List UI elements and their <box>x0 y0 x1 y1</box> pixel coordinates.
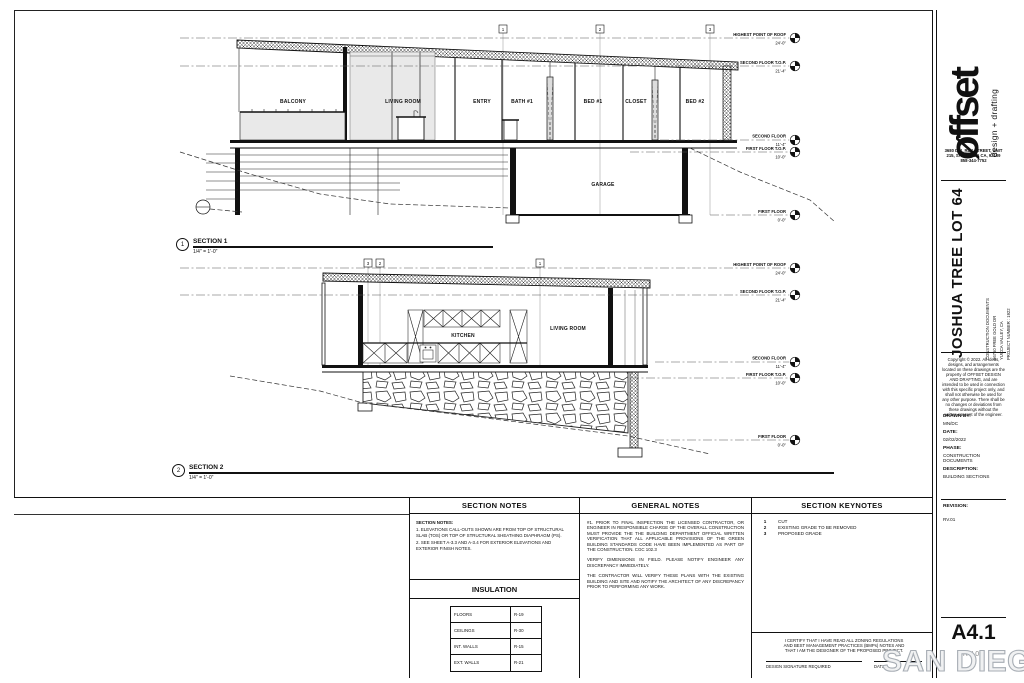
room-label-kitchen: KITCHEN <box>451 333 475 339</box>
blank-panel <box>14 498 410 678</box>
balcony-section1 <box>240 109 345 140</box>
room-label-bed1: BED #1 <box>584 99 603 105</box>
general-notes-panel: GENERAL NOTES #1. PRIOR TO FINAL INSPECT… <box>580 498 752 678</box>
table-row: CEILINGS R-30 <box>451 623 541 639</box>
notes-band: SECTION NOTES SECTION NOTES: 1. ELEVATIO… <box>14 497 932 678</box>
section1-number-bubble: 1 <box>176 238 189 251</box>
title-block-fields: DRAWN BY: MN/DC DATE: 02/02/2022 PHASE: … <box>943 410 1006 479</box>
foundation-section2 <box>230 372 710 457</box>
svg-text:FIRST FLOOR: FIRST FLOOR <box>758 209 786 214</box>
signature-line[interactable] <box>766 661 862 662</box>
section-note-item: 1. ELEVATIONS CALL-OUTS SHOWN ARE FROM T… <box>416 527 573 538</box>
svg-text:0'-0": 0'-0" <box>778 443 787 448</box>
svg-text:FIRST FLOOR T.O.P.: FIRST FLOOR T.O.P. <box>746 146 786 151</box>
field-value: BUILDING SECTIONS <box>943 474 1006 479</box>
svg-text:10'-0": 10'-0" <box>775 155 786 160</box>
room-label-closet: CLOSET <box>625 99 646 105</box>
insulation-header: INSULATION <box>410 579 579 599</box>
mls-watermark: SAN DIEGOMLS <box>882 645 1024 679</box>
section2-title: SECTION 2 <box>189 464 834 474</box>
field-label: PHASE: <box>943 446 1006 451</box>
room-label-bed2: BED #2 <box>686 99 705 105</box>
svg-text:FIRST FLOOR T.O.P.: FIRST FLOOR T.O.P. <box>746 372 786 377</box>
room-label-living-room: LIVING ROOM <box>550 326 586 332</box>
elevation-marker: FIRST FLOOR 0'-0" <box>710 209 800 223</box>
divider <box>941 180 1006 181</box>
svg-text:21'-4": 21'-4" <box>775 69 786 74</box>
room-label-living-room: LIVING ROOM <box>385 99 421 105</box>
table-row: EXT. WALLS R-21 <box>451 655 541 671</box>
svg-text:10'-0": 10'-0" <box>775 381 786 386</box>
general-notes-header: GENERAL NOTES <box>580 498 751 514</box>
svg-text:SECOND FLOOR T.O.P.: SECOND FLOOR T.O.P. <box>740 60 786 65</box>
insulation-table: FLOORS R-19 CEILINGS R-30 INT. WALLS R-1… <box>450 606 542 672</box>
floor-slab-section2 <box>322 365 648 372</box>
field-value: MN/DC <box>943 421 1006 426</box>
svg-text:21'-4": 21'-4" <box>775 298 786 303</box>
field-label: DESCRIPTION: <box>943 467 1006 472</box>
room-label-bath1: BATH #1 <box>511 99 533 105</box>
room-label-garage: GARAGE <box>591 182 615 188</box>
room-label-entry: ENTRY <box>473 99 491 105</box>
elevation-marker: FIRST FLOOR 0'-0" <box>655 434 800 448</box>
section-notes-title: SECTION NOTES: <box>416 520 573 525</box>
field-label: DATE: <box>943 430 1006 435</box>
title-block-inner: øffset design + drafting 3680 DEL REY ST… <box>936 10 1010 678</box>
copyright-text: Copyright © 2022. All ideas, designs, an… <box>937 357 1010 417</box>
table-row: FLOORS R-19 <box>451 607 541 623</box>
section1-caption: 1 SECTION 1 1/4" = 1'-0" <box>176 238 493 255</box>
section-notes-body: SECTION NOTES: 1. ELEVATIONS CALL-OUTS S… <box>410 514 579 551</box>
svg-text:0'-0": 0'-0" <box>778 218 787 223</box>
elevation-marker: SECOND FLOOR T.O.P. 21'-4" <box>180 289 800 303</box>
divider <box>752 632 932 633</box>
section-keynotes-header: SECTION KEYNOTES <box>752 498 932 514</box>
svg-text:SECOND FLOOR: SECOND FLOOR <box>752 134 786 139</box>
divider <box>941 352 1006 353</box>
watermark-text-left: SAN DIEGO <box>882 645 1024 678</box>
svg-text:SECOND FLOOR: SECOND FLOOR <box>752 356 786 361</box>
section1-title: SECTION 1 <box>193 238 493 248</box>
elevation-marker: HIGHEST POINT OF ROOF 24'-0" <box>180 262 800 276</box>
svg-text:FIRST FLOOR: FIRST FLOOR <box>758 434 786 439</box>
section2-scale: 1/4" = 1'-0" <box>189 475 834 481</box>
firm-address: 3680 DEL REY STREET, UNIT 215, SAN DIEGO… <box>937 148 1010 164</box>
room-label-balcony: BALCONY <box>280 99 307 105</box>
elevation-marker: FIRST FLOOR T.O.P. 10'-0" <box>630 372 800 385</box>
floor-slab-section1 <box>230 140 737 148</box>
section-notes-panel: SECTION NOTES SECTION NOTES: 1. ELEVATIO… <box>410 498 580 678</box>
field-label: DRAWN BY: <box>943 414 1006 419</box>
section1-scale: 1/4" = 1'-0" <box>193 249 493 255</box>
revision-label: REVISION: <box>943 504 968 509</box>
revision-value: RV.01 <box>943 517 955 522</box>
elevation-marker: SECOND FLOOR 11'-4" <box>655 356 800 370</box>
svg-text:HIGHEST POINT OF ROOF: HIGHEST POINT OF ROOF <box>733 32 786 37</box>
divider <box>14 514 409 515</box>
keynote-item: 3 PROPOSED GRADE <box>752 531 932 537</box>
table-row: INT. WALLS R-15 <box>451 639 541 655</box>
svg-text:HIGHEST POINT OF ROOF: HIGHEST POINT OF ROOF <box>733 262 786 267</box>
kitchen-casework <box>363 310 527 363</box>
general-notes-body: #1. PRIOR TO FINAL INSPECTION THE LICENS… <box>580 514 751 589</box>
sheet-number: A4.1 <box>937 621 1010 645</box>
drawing-sheet: 1 2 3 <box>0 0 1024 683</box>
keynotes-list: 1 CUT 2 EXISTING GRADE TO BE REMOVED 3 P… <box>752 514 932 537</box>
title-block: øffset design + drafting 3680 DEL REY ST… <box>932 10 1010 678</box>
section2-caption: 2 SECTION 2 1/4" = 1'-0" <box>172 464 834 481</box>
svg-text:24'-0": 24'-0" <box>775 271 786 276</box>
field-value: CONSTRUCTION DOCUMENTS <box>943 453 1006 463</box>
general-note-paragraph: THE CONTRACTOR WILL VERIFY THESE PLANS W… <box>587 573 744 589</box>
general-note-paragraph: #1. PRIOR TO FINAL INSPECTION THE LICENS… <box>587 520 744 552</box>
field-value: 02/02/2022 <box>943 437 1006 442</box>
section-note-item: 2. SEE SHEET A-3.3 AND A-3.4 FOR EXTERIO… <box>416 540 573 551</box>
signature-field[interactable]: DESIGN SIGNATURE REQUIRED <box>766 661 862 669</box>
roof-section2 <box>323 273 650 288</box>
section1-drawing: 1 2 3 <box>170 22 840 257</box>
divider <box>941 617 1006 618</box>
logo-tagline: design + drafting <box>989 52 999 157</box>
signature-label: DESIGN SIGNATURE REQUIRED <box>766 664 862 669</box>
svg-text:SECOND FLOOR T.O.P.: SECOND FLOOR T.O.P. <box>740 289 786 294</box>
section2-number-bubble: 2 <box>172 464 185 477</box>
svg-text:11'-4": 11'-4" <box>776 364 787 369</box>
logo: øffset <box>943 22 988 160</box>
project-title: JOSHUA TREE LOT 64 <box>949 190 966 358</box>
section2-drawing: 3 2 1 <box>170 258 840 473</box>
lower-level-section1 <box>180 148 835 223</box>
section-notes-header: SECTION NOTES <box>410 498 579 514</box>
general-note-paragraph: VERIFY DIMENSIONS IN FIELD. PLEASE NOTIF… <box>587 557 744 568</box>
svg-text:24'-0": 24'-0" <box>775 41 786 46</box>
divider <box>941 499 1006 500</box>
